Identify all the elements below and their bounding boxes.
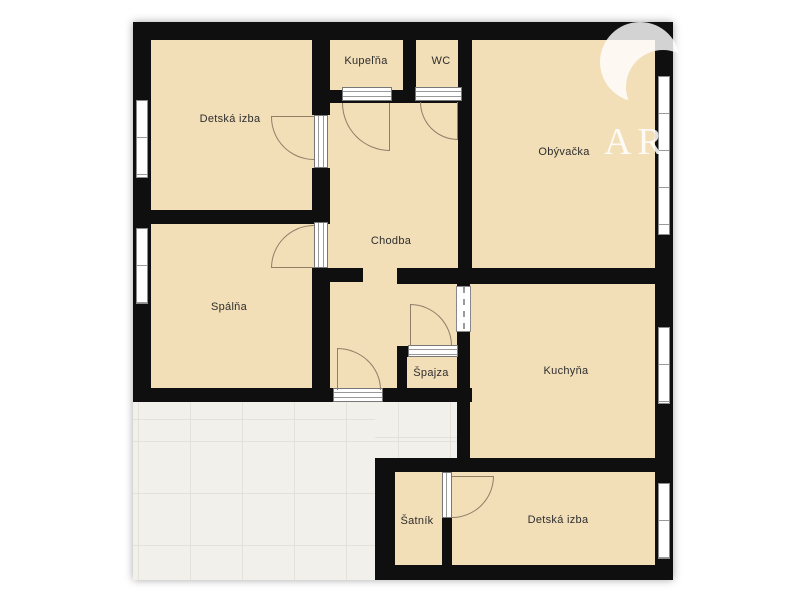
door-leaf-detska-top bbox=[271, 116, 314, 117]
door-leaf-kupelna bbox=[389, 103, 390, 151]
door-frame-detska-top bbox=[314, 115, 328, 168]
door-threshold-wc bbox=[415, 87, 462, 101]
room-label-spajza: Špajza bbox=[413, 367, 448, 379]
door-leaf-spalna bbox=[271, 267, 314, 268]
wall-chodba-obyvacka bbox=[458, 22, 472, 284]
door-frame-satnik bbox=[442, 472, 452, 518]
door-frame-spalna bbox=[314, 222, 328, 268]
door-leaf-terrace bbox=[337, 348, 338, 390]
wall-obyvacka-kuchyna bbox=[397, 268, 673, 284]
wall-chodba-south-west bbox=[312, 268, 363, 282]
window-spalna bbox=[136, 228, 148, 304]
wall-bottomsec-north bbox=[375, 458, 673, 472]
room-label-kupelna: Kupeľňa bbox=[344, 55, 387, 67]
room-label-detska-izba-bottom: Detská izba bbox=[528, 514, 589, 526]
door-leaf-wc bbox=[457, 102, 458, 140]
sliding-door-kuchyna bbox=[456, 286, 471, 332]
window-kuchyna bbox=[658, 327, 670, 404]
room-label-satnik: Šatník bbox=[401, 515, 434, 527]
wall-detska-spalna bbox=[133, 210, 330, 224]
room-label-spalna: Spálňa bbox=[211, 301, 247, 313]
watermark-text: AR bbox=[604, 120, 669, 164]
watermark-moon-icon bbox=[595, 10, 705, 130]
door-leaf-spajza bbox=[410, 304, 411, 346]
window-detska-top bbox=[136, 100, 148, 178]
terrace-tiles-strip bbox=[375, 402, 457, 458]
room-label-kuchyna: Kuchyňa bbox=[544, 365, 589, 377]
room-label-chodba: Chodba bbox=[371, 235, 411, 247]
wall-spine-top bbox=[312, 22, 330, 115]
wall-bottomsec-west bbox=[375, 458, 395, 580]
wall-bottomsec-south bbox=[375, 565, 673, 580]
window-detska-bottom bbox=[658, 483, 670, 559]
terrace-tiles bbox=[133, 402, 375, 580]
wall-spine-bottom bbox=[312, 268, 330, 402]
room-label-obyvacka: Obývačka bbox=[538, 146, 589, 158]
wall-spine-mid bbox=[312, 168, 330, 222]
wall-satnik-divider bbox=[442, 518, 452, 565]
room-label-detska-izba-top: Detská izba bbox=[200, 113, 261, 125]
door-threshold-spajza bbox=[408, 345, 458, 357]
door-threshold-kupelna bbox=[342, 87, 392, 101]
floor-plan: Detská izba Kupeľňa WC Obývačka Chodba S… bbox=[0, 0, 800, 600]
door-threshold-terrace bbox=[333, 388, 383, 402]
wall-bottom-main bbox=[133, 388, 472, 402]
room-label-wc: WC bbox=[432, 55, 451, 67]
door-leaf-detska-bottom bbox=[452, 476, 494, 477]
